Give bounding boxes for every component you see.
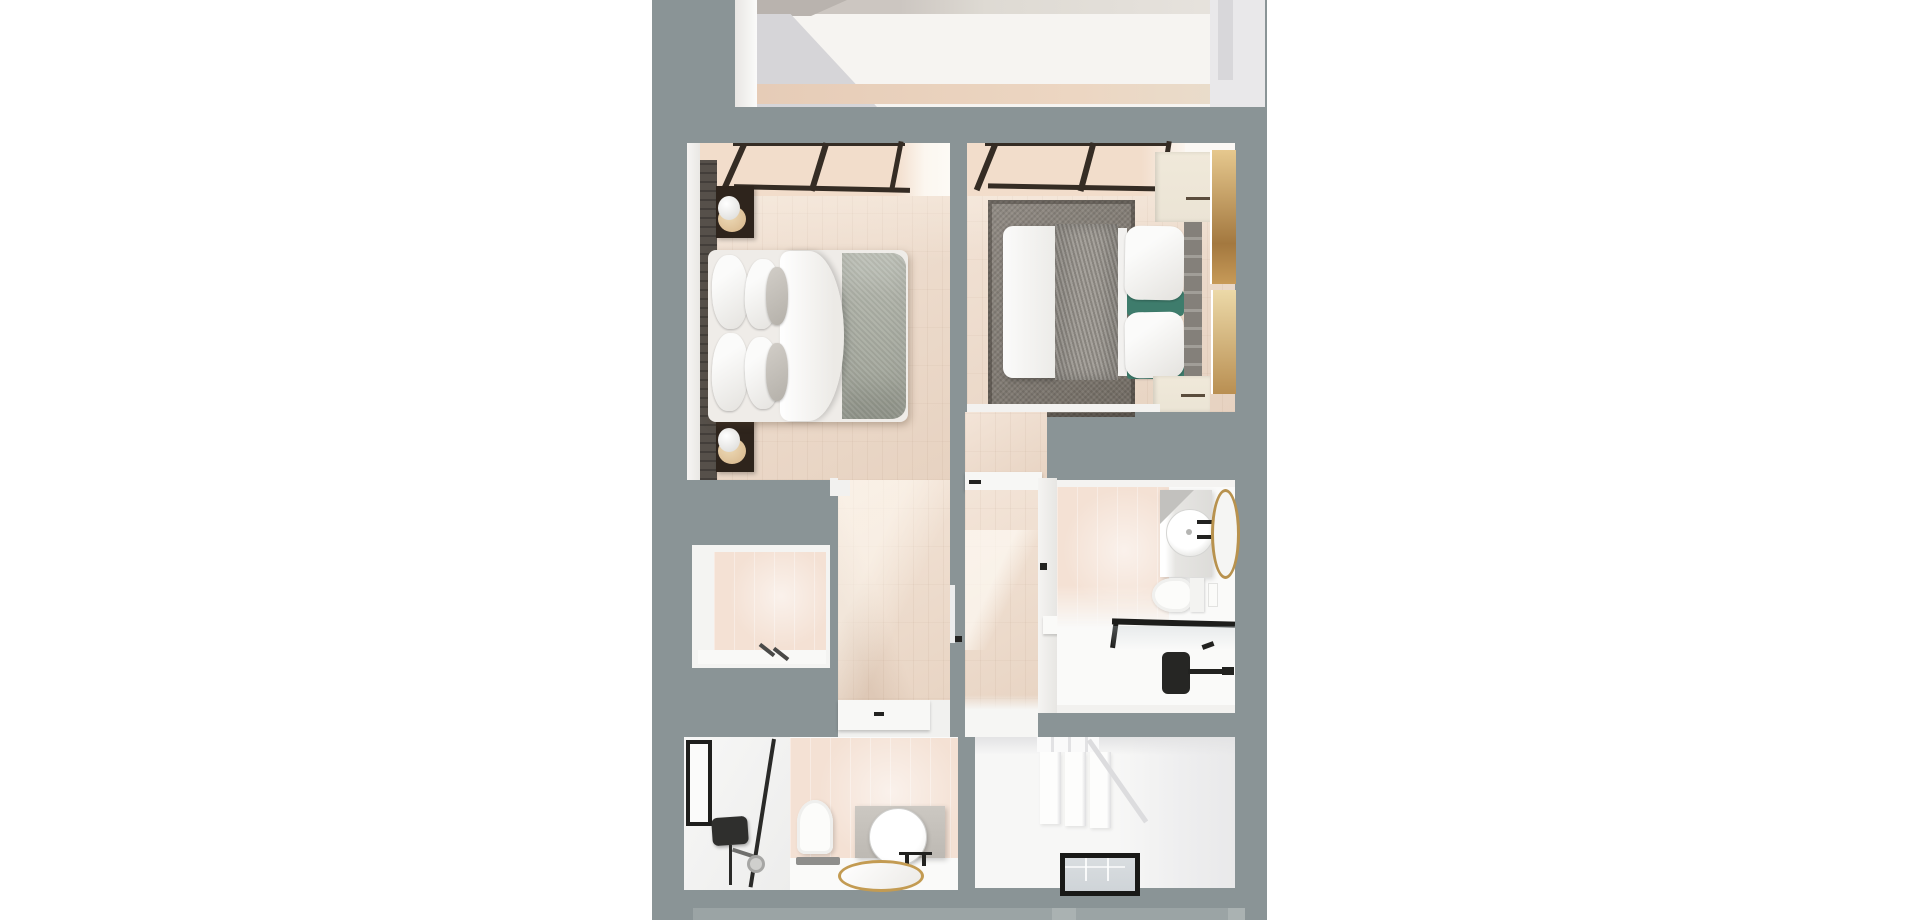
bathroom-lower — [684, 737, 958, 890]
lower-bath-drain — [747, 855, 765, 873]
bedroom-2-pillow-2 — [1124, 311, 1184, 378]
vestibule-bathroom-wall — [1038, 478, 1057, 713]
lower-bath-toilet-mat — [796, 857, 840, 865]
ensuite-sink-drain — [1186, 529, 1192, 535]
bedroom-2-bottom-wall-edge — [967, 404, 1160, 412]
plan-bottom-cut-wall — [693, 908, 1245, 920]
floor-plan-render — [0, 0, 1920, 920]
ensuite-shower-hook — [1222, 667, 1234, 675]
inner-vestibule — [965, 490, 1038, 737]
plan-bottom-cut-notch — [1052, 908, 1076, 920]
closet-back-wall — [714, 552, 826, 650]
bedroom-2-knit-throw — [1055, 224, 1118, 380]
bedroom-1-left-wall — [687, 143, 700, 480]
ensuite-top-wall-edge — [1057, 480, 1235, 487]
lower-bath-shower-window — [686, 740, 712, 826]
lower-bath-faucet-bar — [899, 852, 932, 855]
bedroom-2-mattress — [1003, 226, 1055, 378]
upper-room — [735, 0, 1265, 107]
hallway-shadow — [838, 480, 950, 737]
stair-glass-rail — [1065, 866, 1125, 868]
inner-vestibule-white-landing — [965, 695, 1038, 737]
plan-bottom-cut-notch-2 — [1228, 908, 1245, 920]
bedroom-2-pillow-1 — [1124, 225, 1184, 300]
bedroom-1-accent-pillow-1 — [766, 267, 788, 325]
lower-bath-toilet — [797, 800, 833, 854]
hallway-door-frame — [838, 480, 850, 496]
bedroom-2-wall-art-2 — [1211, 290, 1236, 394]
bedroom-1-window-head — [733, 143, 905, 146]
ensuite-toilet-tank — [1190, 578, 1204, 612]
bedroom-1 — [687, 143, 950, 480]
hallway — [838, 480, 950, 737]
stair-glass-mullion-1 — [1085, 858, 1087, 881]
lower-bath-shower-head — [711, 816, 749, 846]
center-wall-door-leaf — [950, 585, 955, 643]
bathroom-ensuite — [1057, 480, 1235, 713]
ensuite-bottom-wall-edge — [1057, 705, 1235, 713]
bedroom-2 — [967, 143, 1235, 412]
closet-floor — [698, 650, 826, 664]
stair-riser-2 — [1065, 752, 1086, 826]
upper-room-right-shadow-band — [1218, 0, 1233, 80]
bedroom-1-comforter — [842, 253, 906, 419]
bedroom-2-wardrobe-handle — [1186, 197, 1210, 200]
inner-vestibule-sheen — [965, 530, 1038, 650]
bedroom-2-headboard — [1184, 218, 1202, 384]
closet — [692, 545, 830, 668]
bedroom-2-wall-art-1 — [1210, 150, 1236, 284]
bedroom-1-lamp-bottom-globe — [718, 428, 740, 452]
hallway-bathroom-door — [838, 700, 930, 730]
upper-room-beige-floor-strip — [757, 84, 1215, 104]
stair-riser-1 — [1040, 752, 1061, 824]
ensuite-shower-glass-tint — [1112, 626, 1235, 650]
hallway-vestibule-door-handle — [954, 636, 962, 642]
hallway-bathroom-door-handle — [874, 712, 884, 716]
ensuite-flush-plate — [1208, 583, 1218, 607]
ensuite-oval-mirror — [1211, 489, 1240, 579]
upper-room-left-wall — [735, 0, 757, 107]
bedroom-2-door-handle — [969, 480, 981, 484]
ensuite-shower-column — [1162, 652, 1190, 694]
lower-bath-round-mirror — [869, 808, 927, 866]
ensuite-pink-floor — [1057, 487, 1169, 628]
bathroom-door-handle — [1040, 563, 1047, 570]
bedroom-1-lamp-top-globe — [718, 196, 740, 220]
stair-glass-mullion-2 — [1107, 858, 1109, 881]
bedroom-2-window-head — [985, 143, 1170, 146]
bedroom-2-dresser-handle — [1181, 394, 1205, 397]
stairwell — [975, 737, 1235, 888]
lower-bath-faucet-2 — [922, 854, 926, 866]
lower-bath-gold-basin — [838, 860, 924, 892]
bedroom-1-bottom-door-jamb — [830, 478, 838, 496]
bedroom-1-accent-pillow-2 — [766, 343, 788, 401]
ensuite-toilet-bowl — [1152, 578, 1194, 612]
stair-glass-floor-opening — [1060, 853, 1140, 896]
